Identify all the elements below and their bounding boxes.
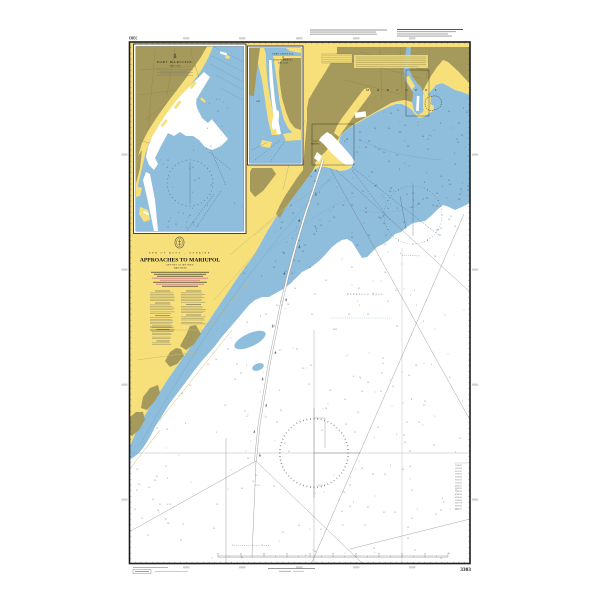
svg-text:and: and xyxy=(282,56,284,58)
svg-text:96 719 87: 96 719 87 xyxy=(455,471,462,473)
svg-text:7: 7 xyxy=(221,135,222,137)
svg-text:3: 3 xyxy=(163,164,164,166)
svg-text:10: 10 xyxy=(166,167,168,169)
svg-text:7: 7 xyxy=(172,187,173,189)
svg-text:34 859 25: 34 859 25 xyxy=(455,488,462,490)
svg-text:3: 3 xyxy=(169,177,170,179)
svg-text:PORT MARIUPOL: PORT MARIUPOL xyxy=(157,60,193,64)
svg-text:60 345 80: 60 345 80 xyxy=(455,497,462,499)
svg-text:10: 10 xyxy=(198,178,200,180)
svg-text:48 115 37: 48 115 37 xyxy=(455,485,462,487)
svg-text:6: 6 xyxy=(193,150,194,152)
svg-text:12: 12 xyxy=(194,180,196,182)
svg-text:6: 6 xyxy=(234,203,235,205)
svg-text:15 994 19: 15 994 19 xyxy=(455,474,462,476)
svg-text:MARIUPOL: MARIUPOL xyxy=(366,88,445,92)
svg-text:12: 12 xyxy=(175,224,177,226)
svg-text:12: 12 xyxy=(210,185,212,187)
svg-text:DEPTHS IN METRES: DEPTHS IN METRES xyxy=(166,264,194,266)
svg-text:11: 11 xyxy=(210,146,212,148)
svg-text:3303: 3303 xyxy=(460,567,471,573)
svg-text:87 820 36: 87 820 36 xyxy=(455,494,462,496)
svg-text:PORT AZOVSTAL: PORT AZOVSTAL xyxy=(272,52,293,55)
svg-text:Zhdanova Bank: Zhdanova Bank xyxy=(347,293,384,296)
svg-text:3303: 3303 xyxy=(129,35,137,40)
svg-text:8: 8 xyxy=(183,213,184,215)
svg-text:58 577 78: 58 577 78 xyxy=(455,503,462,505)
svg-text:16 374 58: 16 374 58 xyxy=(455,468,462,470)
svg-text:APPROACHES TO MARIUPOL: APPROACHES TO MARIUPOL xyxy=(140,257,221,263)
svg-text:6: 6 xyxy=(189,168,190,170)
svg-text:71 348 99: 71 348 99 xyxy=(455,491,462,493)
svg-text:4: 4 xyxy=(222,126,223,128)
svg-text:51 894 46: 51 894 46 xyxy=(455,500,462,502)
svg-text:5: 5 xyxy=(192,192,193,194)
svg-text:7: 7 xyxy=(220,145,221,147)
svg-text:6: 6 xyxy=(178,212,179,214)
svg-text:5: 5 xyxy=(197,226,198,228)
svg-text:10: 10 xyxy=(192,167,194,169)
svg-text:10: 10 xyxy=(192,222,194,224)
svg-text:Peschanyy: Peschanyy xyxy=(401,255,420,257)
svg-text:4: 4 xyxy=(207,205,208,207)
svg-text:6: 6 xyxy=(216,99,217,101)
svg-text:5: 5 xyxy=(209,103,210,105)
svg-text:7: 7 xyxy=(160,160,161,162)
svg-text:11: 11 xyxy=(217,111,219,113)
svg-text:7: 7 xyxy=(223,102,224,104)
svg-text:MARIUPOL: MARIUPOL xyxy=(311,143,320,146)
svg-text:21 648 34: 21 648 34 xyxy=(455,465,462,467)
svg-text:93 467 49: 93 467 49 xyxy=(455,506,462,508)
svg-text:HAVEN MORITA: HAVEN MORITA xyxy=(273,59,293,62)
svg-text:SEA OF AZOV – UKRAINE: SEA OF AZOV – UKRAINE xyxy=(149,252,211,255)
svg-text:3: 3 xyxy=(170,218,171,220)
svg-text:Belosarayskaya Bank: Belosarayskaya Bank xyxy=(232,545,270,547)
svg-text:SCALE 1:50 000: SCALE 1:50 000 xyxy=(174,267,187,270)
svg-text:10: 10 xyxy=(168,221,170,223)
svg-text:4: 4 xyxy=(206,148,207,150)
svg-text:5: 5 xyxy=(188,217,189,219)
svg-text:9: 9 xyxy=(193,225,194,227)
svg-text:PORT: PORT xyxy=(256,101,260,103)
svg-text:71 313 52: 71 313 52 xyxy=(455,482,462,484)
svg-text:7: 7 xyxy=(242,206,243,208)
svg-text:12: 12 xyxy=(167,227,169,229)
svg-text:6: 6 xyxy=(207,128,208,130)
svg-text:9: 9 xyxy=(227,108,228,110)
svg-text:95 672 37: 95 672 37 xyxy=(455,480,462,482)
svg-text:9: 9 xyxy=(219,99,220,101)
svg-text:34 923 85: 34 923 85 xyxy=(455,477,462,479)
svg-text:3: 3 xyxy=(186,222,187,224)
svg-text:6: 6 xyxy=(192,208,193,210)
svg-text:43 468 75: 43 468 75 xyxy=(455,509,462,511)
svg-text:12: 12 xyxy=(167,160,169,162)
svg-text:10: 10 xyxy=(189,215,191,217)
svg-text:3: 3 xyxy=(186,227,187,229)
